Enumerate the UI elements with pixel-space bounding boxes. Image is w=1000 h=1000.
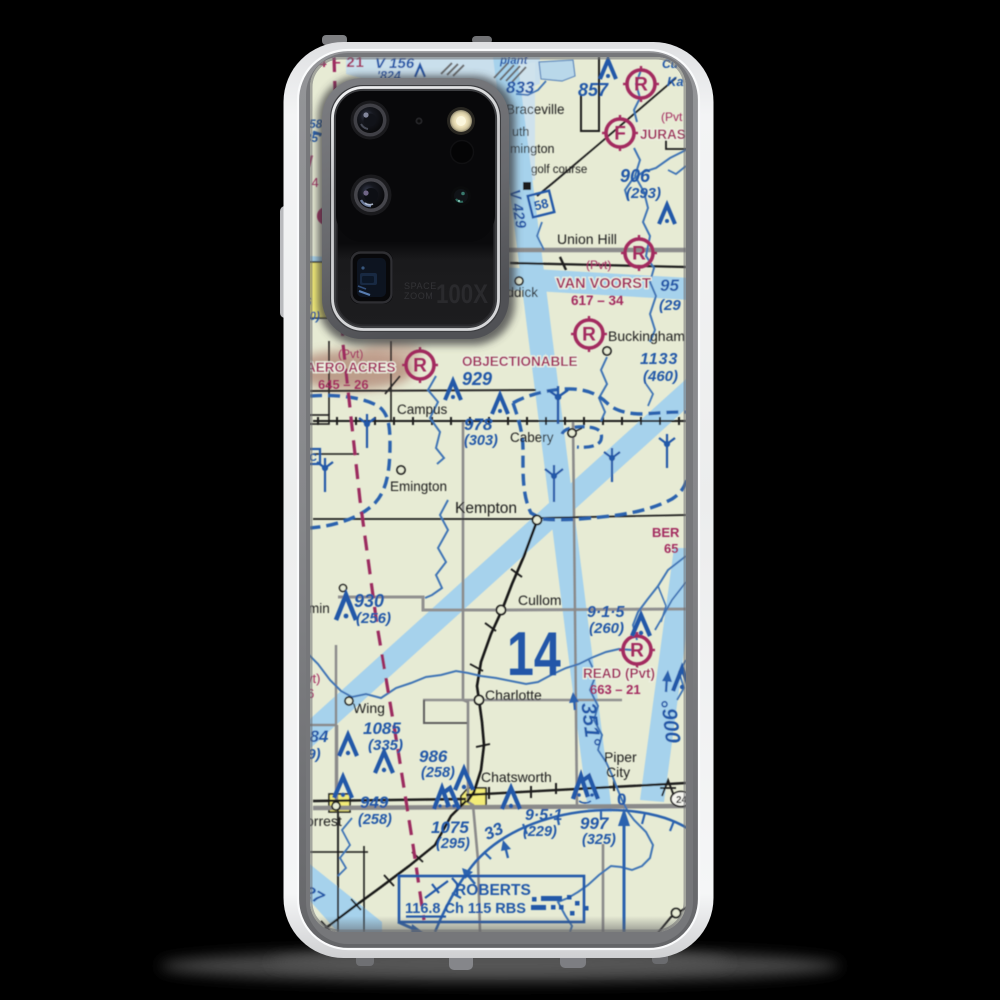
svg-text:mington: mington <box>510 142 555 156</box>
svg-text:Chatsworth: Chatsworth <box>481 769 552 785</box>
svg-text:(258): (258) <box>421 765 455 781</box>
svg-text:Buckingham: Buckingham <box>608 328 685 344</box>
svg-text:golf course: golf course <box>531 164 587 176</box>
svg-text:833: 833 <box>506 78 535 97</box>
svg-text:Union Hill: Union Hill <box>557 231 617 247</box>
svg-text:645 – 26: 645 – 26 <box>318 377 369 392</box>
svg-text:SPACE: SPACE <box>404 281 437 291</box>
svg-text:City: City <box>606 764 630 780</box>
svg-text:(Pvt): (Pvt) <box>586 258 611 272</box>
svg-text:1075: 1075 <box>431 818 469 837</box>
svg-text:116.8 Ch 115 RBS: 116.8 Ch 115 RBS <box>405 901 526 917</box>
svg-text:OBJECTIONABLE: OBJECTIONABLE <box>462 354 578 369</box>
svg-text:(460): (460) <box>643 368 678 385</box>
svg-text:VAN VOORST: VAN VOORST <box>556 276 651 292</box>
svg-text:R: R <box>634 75 648 96</box>
svg-text:65: 65 <box>664 541 678 556</box>
svg-text:BER: BER <box>652 525 680 540</box>
svg-text:(258): (258) <box>358 812 392 828</box>
svg-text:9·1·5: 9·1·5 <box>587 604 625 621</box>
svg-text:R: R <box>582 325 596 346</box>
svg-text:Emington: Emington <box>390 479 447 494</box>
svg-text:986: 986 <box>419 747 448 766</box>
svg-text:(Pvt: (Pvt <box>661 110 683 124</box>
svg-text:AERO ACRES: AERO ACRES <box>306 360 396 375</box>
svg-text:(293): (293) <box>626 185 661 202</box>
svg-text:617 – 34: 617 – 34 <box>571 293 624 308</box>
svg-text:R: R <box>630 641 644 662</box>
svg-text:0: 0 <box>617 790 626 809</box>
svg-text:95: 95 <box>660 276 679 295</box>
svg-text:(303): (303) <box>464 433 498 449</box>
svg-text:F: F <box>614 124 626 145</box>
svg-text:906: 906 <box>620 166 651 186</box>
svg-text:857: 857 <box>578 80 609 100</box>
svg-text:R: R <box>632 244 646 265</box>
svg-text:(256): (256) <box>356 610 391 627</box>
svg-text:663 – 21: 663 – 21 <box>590 682 641 697</box>
svg-text:(335): (335) <box>368 737 403 754</box>
svg-text:(295): (295) <box>436 836 470 852</box>
svg-text:ZOOM: ZOOM <box>404 291 433 301</box>
svg-text:930: 930 <box>354 591 384 611</box>
svg-text:JURAS: JURAS <box>640 127 686 142</box>
svg-text:1085: 1085 <box>363 719 401 738</box>
svg-text:(325): (325) <box>582 832 616 848</box>
svg-text:Wing: Wing <box>353 700 385 716</box>
svg-text:997: 997 <box>580 814 610 833</box>
svg-text:Kempton: Kempton <box>455 500 517 517</box>
svg-text:100X: 100X <box>436 279 488 309</box>
svg-text:14: 14 <box>507 619 561 688</box>
svg-text:Cullom: Cullom <box>518 592 562 608</box>
svg-text:(Pvt): (Pvt) <box>338 347 363 361</box>
svg-text:(29: (29 <box>659 297 681 314</box>
svg-text:949: 949 <box>360 793 389 812</box>
svg-text:Charlotte: Charlotte <box>485 687 542 703</box>
svg-text:9·5·1: 9·5·1 <box>525 807 562 824</box>
svg-text:R: R <box>413 356 427 377</box>
svg-text:Ka: Ka <box>667 74 684 89</box>
svg-text:1133: 1133 <box>640 351 678 368</box>
svg-text:978: 978 <box>464 415 493 434</box>
svg-text:929: 929 <box>462 369 492 389</box>
svg-text:Cabery: Cabery <box>510 430 554 445</box>
svg-text:(229): (229) <box>523 824 557 840</box>
svg-text:Campus: Campus <box>397 402 448 417</box>
svg-text:Piper: Piper <box>604 749 637 765</box>
svg-text:READ (Pvt): READ (Pvt) <box>583 666 655 681</box>
svg-text:ROBERTS: ROBERTS <box>455 882 531 899</box>
svg-text:(260): (260) <box>589 620 624 637</box>
